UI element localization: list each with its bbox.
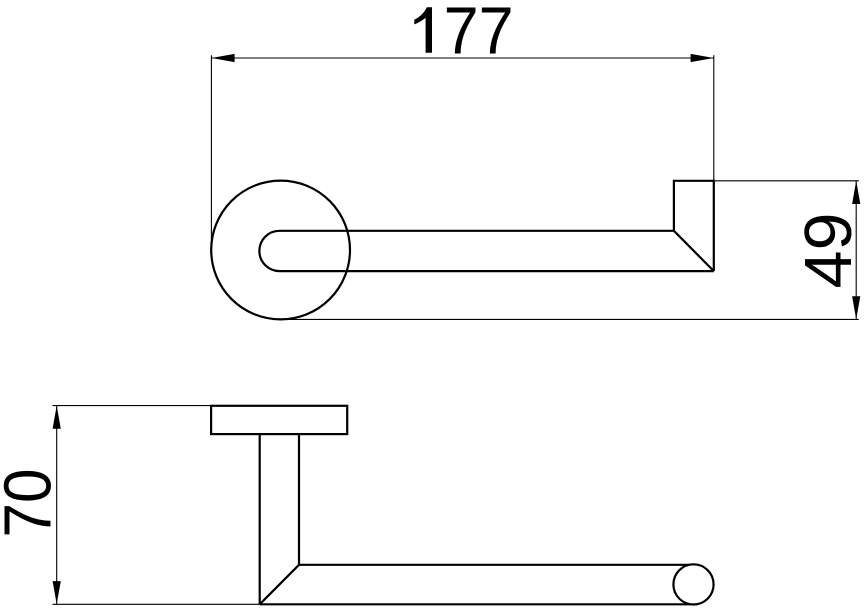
svg-text:70: 70 — [0, 469, 66, 538]
svg-text:49: 49 — [791, 213, 864, 289]
svg-text:77: 77 — [444, 0, 514, 68]
